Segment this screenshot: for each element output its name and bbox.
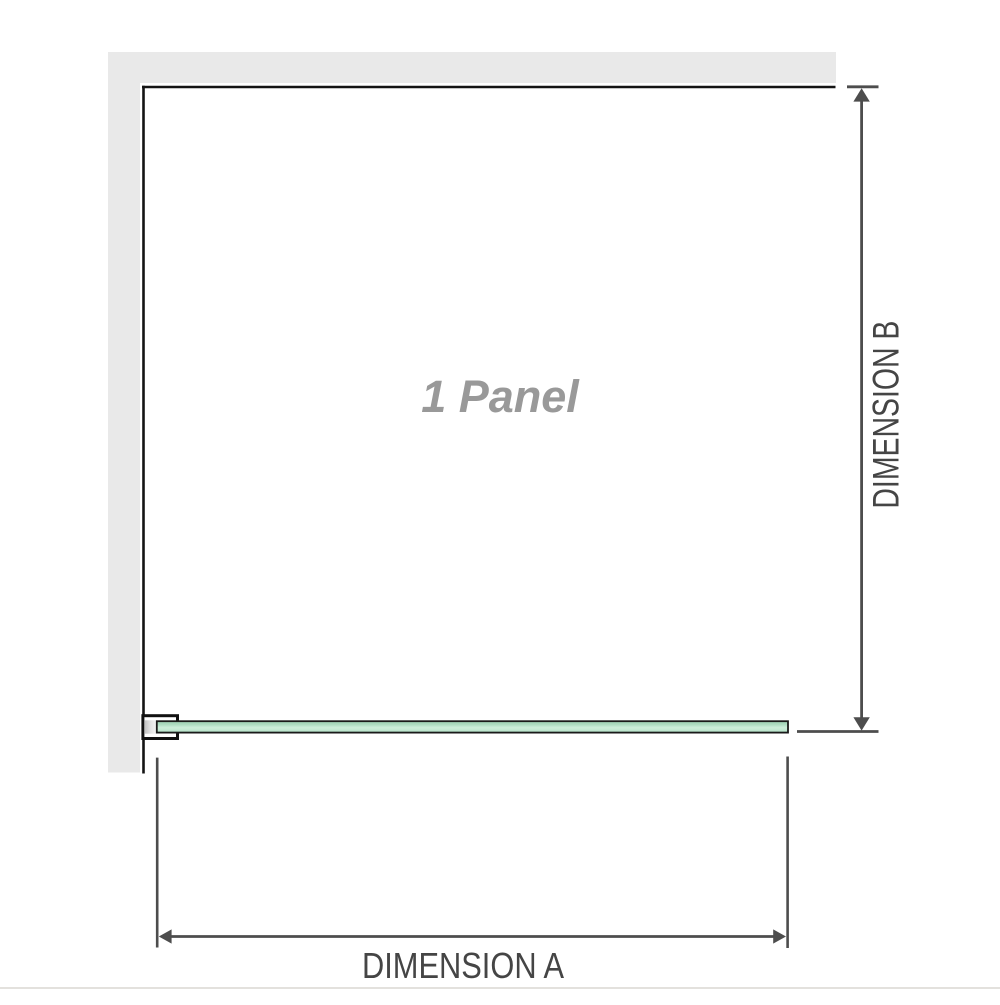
svg-text:1 Panel: 1 Panel	[421, 371, 580, 422]
svg-text:DIMENSION B: DIMENSION B	[865, 321, 907, 509]
svg-text:DIMENSION A: DIMENSION A	[362, 945, 565, 986]
